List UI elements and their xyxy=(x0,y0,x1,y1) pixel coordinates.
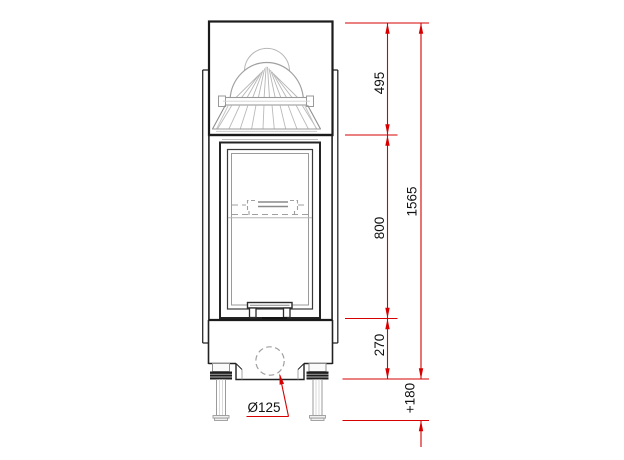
firebox-door xyxy=(220,143,320,321)
dome-skirt-ribs xyxy=(218,105,317,129)
dim-label-plus180: +180 xyxy=(403,383,418,413)
left-leg xyxy=(210,364,232,421)
dim-label-1565: 1565 xyxy=(405,186,420,216)
hidden-mechanism xyxy=(232,201,308,219)
door-handle xyxy=(248,303,293,318)
door-inner-frame xyxy=(228,150,313,310)
dim-label-270: 270 xyxy=(372,334,387,357)
air-intake-circle xyxy=(256,347,284,375)
drawing-canvas: 495 800 270 1565 +180 Ø125 xyxy=(0,0,624,460)
flue-dome xyxy=(212,48,321,131)
right-leg xyxy=(307,364,329,421)
fireplace-body xyxy=(203,22,338,421)
dim-label-495: 495 xyxy=(372,72,387,95)
door-outer-frame xyxy=(220,143,320,319)
dim-label-800: 800 xyxy=(372,217,387,240)
air-intake-panel xyxy=(236,364,304,380)
door-glass xyxy=(232,154,309,306)
dome-shell xyxy=(230,63,304,101)
dim-label-flue-diameter: Ø125 xyxy=(247,400,280,415)
